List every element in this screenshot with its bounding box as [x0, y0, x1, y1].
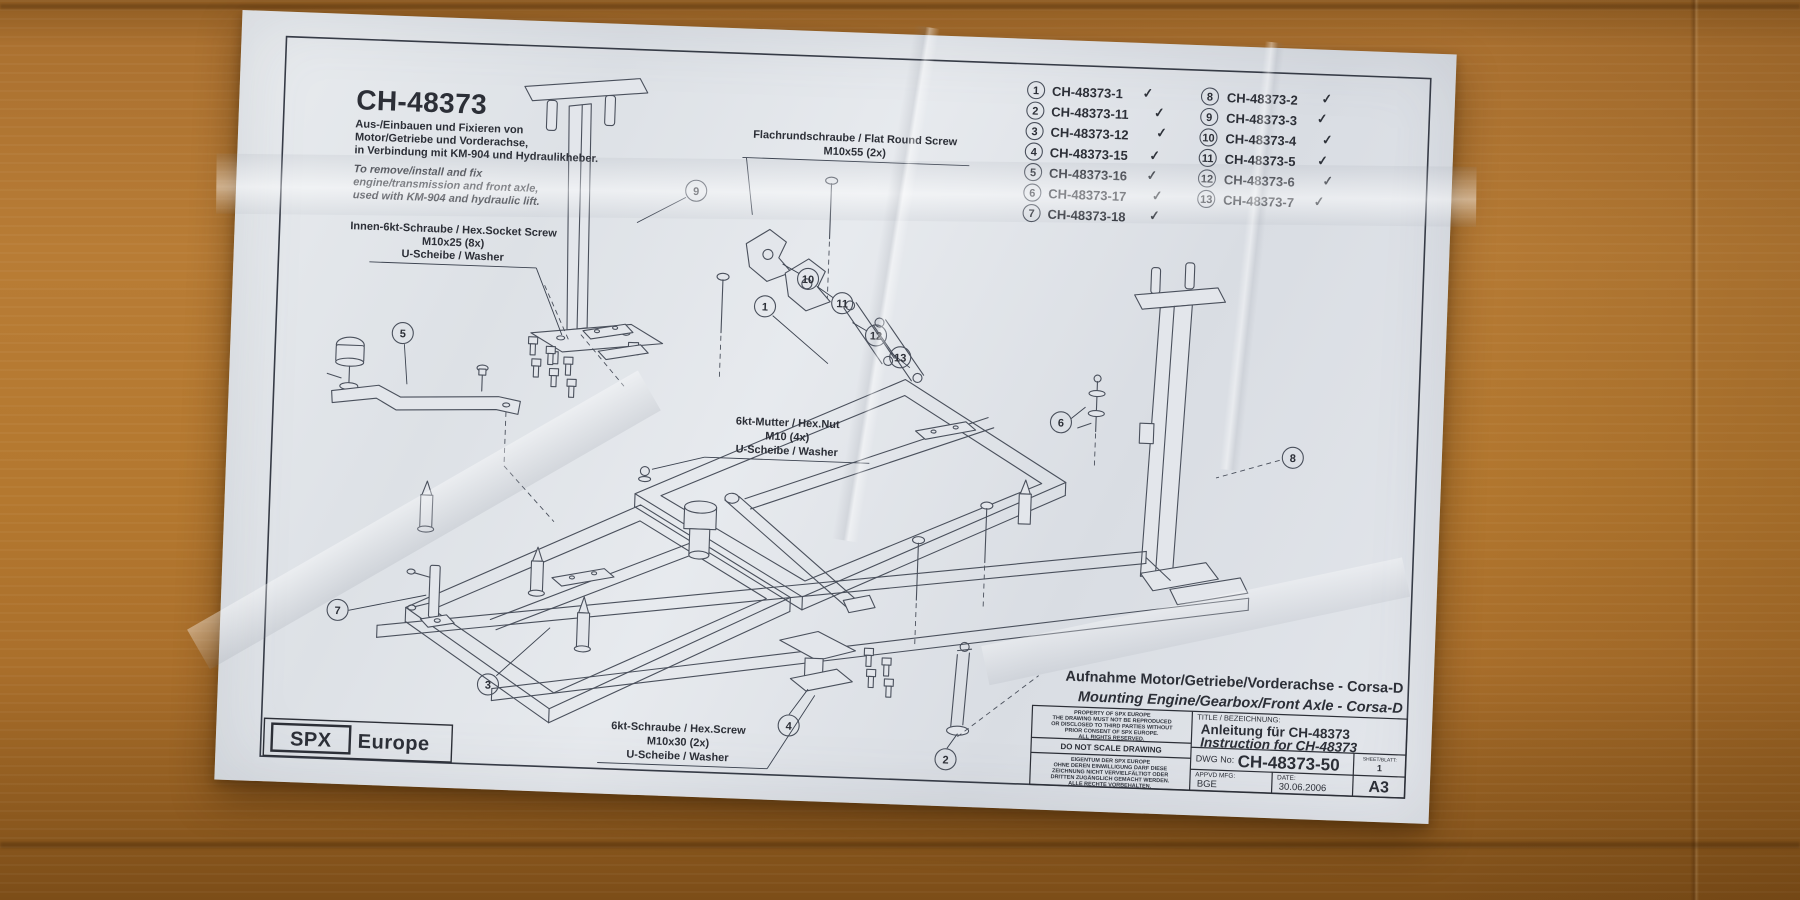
part6-pin-washers [1076, 374, 1105, 469]
callout-number: 13 [894, 352, 907, 364]
parts-list-row: 11 CH-48373-5 ✓ [1199, 148, 1329, 171]
svg-text:7: 7 [1028, 208, 1035, 220]
check-mark: ✓ [1149, 148, 1161, 164]
part-code: CH-48373-5 [1224, 152, 1295, 170]
svg-text:6: 6 [1029, 187, 1036, 199]
svg-text:M10x30 (2x): M10x30 (2x) [647, 735, 710, 749]
do-not-scale-note: DO NOT SCALE DRAWING [1060, 742, 1162, 755]
check-mark: ✓ [1322, 173, 1334, 189]
parts-list-row: 13 CH-48373-7 ✓ [1197, 189, 1325, 212]
svg-text:2: 2 [1032, 106, 1039, 118]
assembly-caption: Aufnahme Motor/Getriebe/Vorderachse - Co… [1064, 669, 1404, 717]
svg-text:M10x55 (2x): M10x55 (2x) [823, 145, 886, 159]
part-number-title: CH-48373 [356, 84, 488, 120]
svg-text:1: 1 [1033, 85, 1040, 97]
cone-studs [413, 458, 1031, 668]
sheet-value: 1 [1377, 763, 1382, 773]
part-code: CH-48373-16 [1049, 166, 1128, 184]
parts-list-row: 4 CH-48373-15 ✓ [1025, 143, 1161, 165]
callout-number: 9 [693, 186, 700, 198]
parts-list-row: 1 CH-48373-1 ✓ [1027, 81, 1154, 103]
part5-knob-arm [322, 336, 560, 521]
tower-right-part8 [1123, 261, 1259, 607]
title-block: PROPERTY OF SPX EUROPE THE DRAWING MUST … [1030, 705, 1408, 799]
bolt-cluster-bottom [863, 648, 895, 697]
callout-number: 10 [802, 274, 815, 286]
check-mark: ✓ [1142, 85, 1154, 101]
parts-list-row: 3 CH-48373-12 ✓ [1026, 120, 1168, 145]
parts-list-row: 12 CH-48373-6 ✓ [1198, 168, 1334, 192]
label-hex-screw: 6kt-Schraube / Hex.Screw [611, 720, 746, 737]
svg-text:M10x25 (8x): M10x25 (8x) [422, 236, 485, 250]
format-value: A3 [1368, 779, 1389, 797]
drawing-sheet: 9 10 11 12 13 1 5 6 8 [214, 10, 1456, 824]
svg-text:13: 13 [1200, 194, 1213, 206]
callout-number: 1 [762, 301, 769, 313]
parts-list-row: 6 CH-48373-17 ✓ [1024, 183, 1164, 206]
callout-number: 11 [836, 298, 848, 310]
svg-text:4: 4 [1031, 146, 1038, 158]
callout-number: 3 [485, 680, 492, 692]
parts-list-row: 9 CH-48373-3 ✓ [1200, 106, 1328, 130]
drawing-header: CH-48373 Aus-/Einbauen und Fixieren von … [353, 84, 601, 210]
date-value: 30.06.2006 [1279, 781, 1327, 794]
part-code: CH-48373-4 [1225, 131, 1297, 149]
spx-europe-logo: SPX Europe [263, 718, 452, 762]
part-code: CH-48373-12 [1050, 125, 1129, 143]
part-code: CH-48373-17 [1048, 186, 1127, 204]
cardboard-shade [1430, 0, 1800, 900]
svg-text:12: 12 [1201, 173, 1214, 185]
part-code: CH-48373-2 [1227, 90, 1298, 108]
label-hex-nut: 6kt-Mutter / Hex.Nut [736, 415, 841, 431]
callout-number: 5 [399, 328, 406, 340]
subframe-left-part3 [402, 496, 794, 731]
callout-number: 6 [1058, 417, 1065, 429]
svg-text:10: 10 [1202, 132, 1215, 144]
part4-foot-bracket [778, 630, 856, 693]
part-code: CH-48373-7 [1223, 193, 1294, 211]
check-mark: ✓ [1149, 208, 1161, 224]
parts-list: 1 CH-48373-1 ✓ 2 CH-48373-11 ✓ 3 CH-4837… [1023, 80, 1338, 233]
logo-europe: Europe [357, 731, 430, 756]
svg-text:3: 3 [1031, 126, 1038, 138]
part-code: CH-48373-3 [1226, 111, 1297, 129]
parts-list-row: 10 CH-48373-4 ✓ [1200, 127, 1334, 150]
svg-text:5: 5 [1030, 167, 1037, 179]
part7-pin [405, 564, 456, 628]
svg-text:8: 8 [1207, 91, 1214, 103]
check-mark: ✓ [1313, 194, 1325, 210]
part-code: CH-48373-1 [1052, 84, 1123, 102]
parts-list-row: 7 CH-48373-18 ✓ [1023, 203, 1161, 227]
label-flat-round-screw: Flachrundschraube / Flat Round Screw [753, 129, 958, 148]
part-code: CH-48373-18 [1047, 207, 1126, 225]
svg-text:ALL RIGHTS RESERVED.: ALL RIGHTS RESERVED. [1078, 734, 1145, 742]
callout-number: 7 [334, 605, 341, 617]
hex-nut-part [639, 466, 652, 481]
svg-text:U-Scheibe / Washer: U-Scheibe / Washer [735, 443, 838, 459]
check-mark: ✓ [1317, 153, 1329, 169]
paper-sheet: 9 10 11 12 13 1 5 6 8 [214, 10, 1456, 824]
check-mark: ✓ [1321, 132, 1333, 148]
check-mark: ✓ [1146, 168, 1158, 184]
check-mark: ✓ [1316, 111, 1328, 127]
part-code: CH-48373-11 [1051, 104, 1129, 122]
svg-text:9: 9 [1206, 112, 1213, 124]
callout-number: 12 [870, 330, 883, 342]
part2-strut [946, 642, 1039, 740]
logo-spx: SPX [290, 728, 332, 752]
svg-text:11: 11 [1202, 153, 1214, 165]
part-code: CH-48373-6 [1224, 172, 1295, 190]
photo-background: 9 10 11 12 13 1 5 6 8 [0, 0, 1800, 900]
parts-list-row: 8 CH-48373-2 ✓ [1201, 86, 1333, 109]
parts-list-row: 2 CH-48373-11 ✓ [1027, 100, 1166, 124]
parts-list-row: 5 CH-48373-16 ✓ [1024, 163, 1158, 185]
callout-number: 2 [942, 754, 949, 766]
subframe-right-part1 [631, 370, 1069, 620]
check-mark: ✓ [1156, 125, 1168, 141]
check-mark: ✓ [1321, 91, 1333, 107]
svg-text:U-Scheibe / Washer: U-Scheibe / Washer [626, 749, 729, 765]
check-mark: ✓ [1153, 105, 1165, 121]
callout-number: 8 [1289, 453, 1296, 465]
check-mark: ✓ [1151, 188, 1163, 204]
appvd-value: BGE [1197, 778, 1217, 790]
dwg-no-value: CH-48373-50 [1237, 752, 1340, 775]
dwg-no-label: DWG No: [1196, 753, 1235, 764]
svg-text:M10 (4x): M10 (4x) [765, 430, 810, 444]
part-code: CH-48373-15 [1050, 145, 1129, 163]
svg-text:U-Scheibe / Washer: U-Scheibe / Washer [401, 248, 504, 264]
cardboard-edge-bottom [0, 842, 1800, 848]
tower-left-part9 [515, 74, 672, 367]
